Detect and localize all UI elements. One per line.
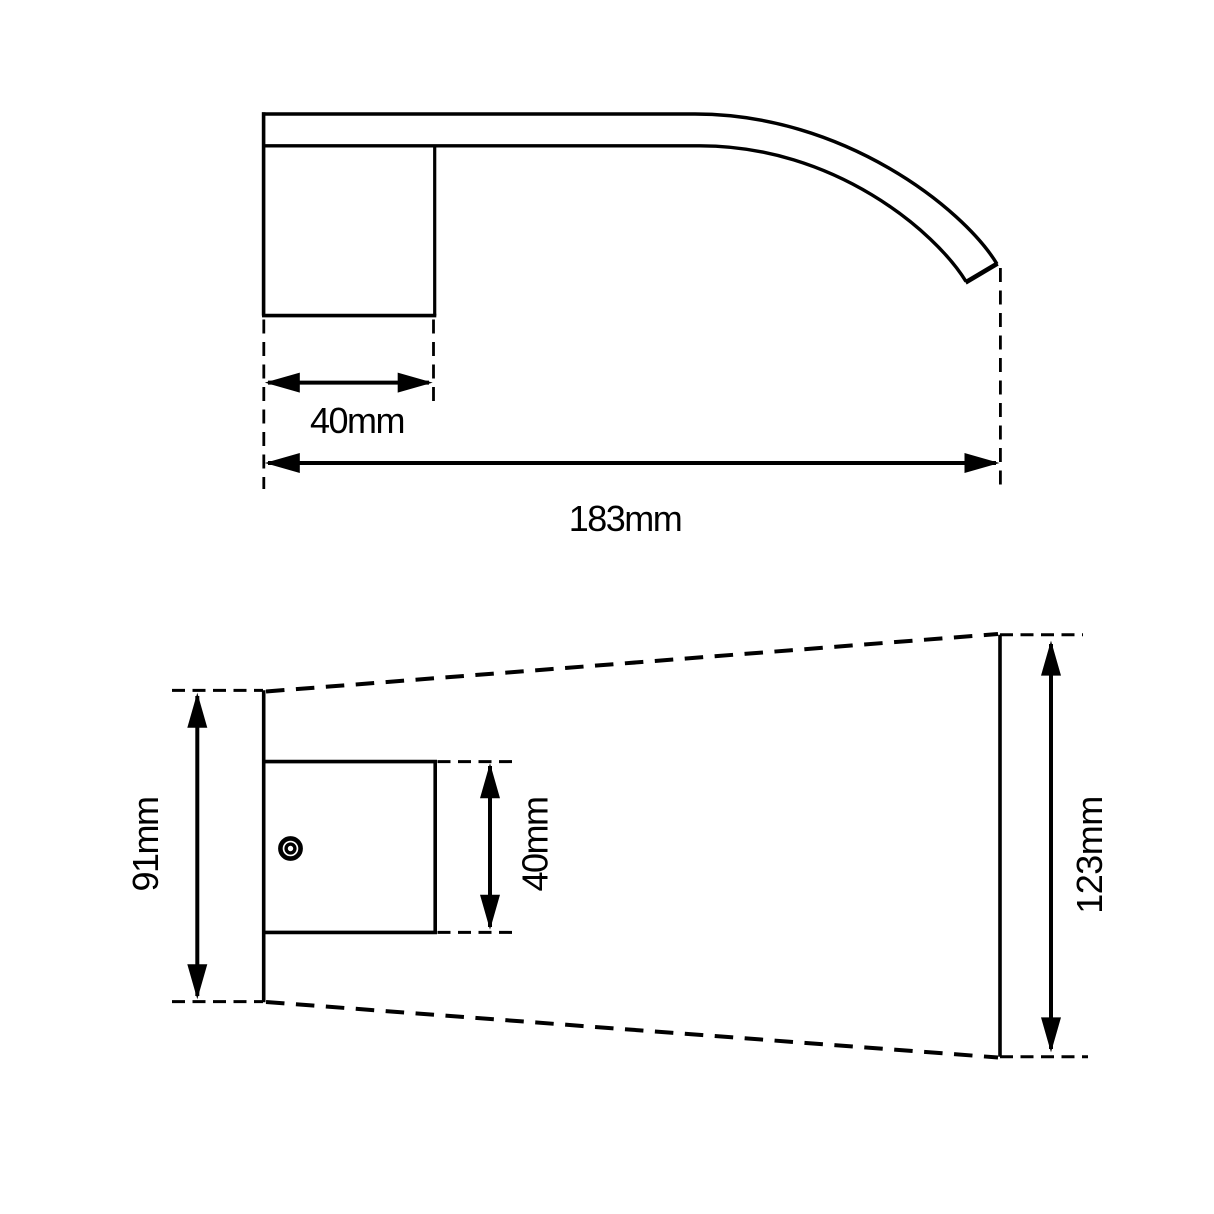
svg-text:183mm: 183mm (569, 498, 682, 539)
svg-text:123mm: 123mm (1069, 796, 1110, 914)
svg-text:40mm: 40mm (515, 797, 556, 891)
svg-text:40mm: 40mm (310, 400, 404, 441)
svg-text:91mm: 91mm (125, 797, 166, 891)
